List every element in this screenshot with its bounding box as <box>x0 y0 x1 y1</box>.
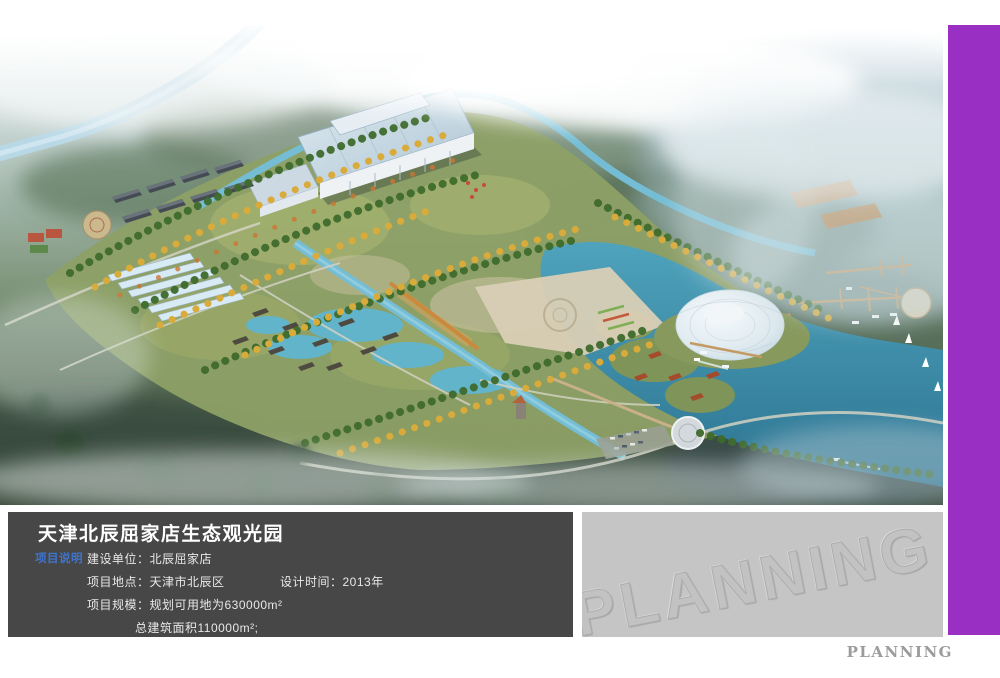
watermark-panel: PLANNING <box>582 512 943 637</box>
section-tag: 项目说明 <box>35 550 83 566</box>
field-builder: 建设单位：北辰屈家店 <box>87 550 212 567</box>
aerial-rendering-svg <box>0 25 943 505</box>
field-location: 项目地点：天津市北辰区 <box>87 573 225 590</box>
planning-watermark: PLANNING <box>582 512 939 637</box>
field-floor-area: 总建筑面积110000m²; <box>135 619 258 636</box>
footer-brand: PLANNING <box>847 643 953 661</box>
accent-sidebar <box>948 25 1000 635</box>
field-design-time: 设计时间：2013年 <box>280 573 384 590</box>
field-scale: 项目规模：规划可用地为630000m² <box>87 596 283 613</box>
aerial-rendering <box>0 25 943 505</box>
project-info-panel: 天津北辰屈家店生态观光园 项目说明 建设单位：北辰屈家店 项目地点：天津市北辰区… <box>8 512 573 637</box>
project-title: 天津北辰屈家店生态观光园 <box>38 519 284 546</box>
presentation-board: 天津北辰屈家店生态观光园 项目说明 建设单位：北辰屈家店 项目地点：天津市北辰区… <box>0 0 1000 678</box>
